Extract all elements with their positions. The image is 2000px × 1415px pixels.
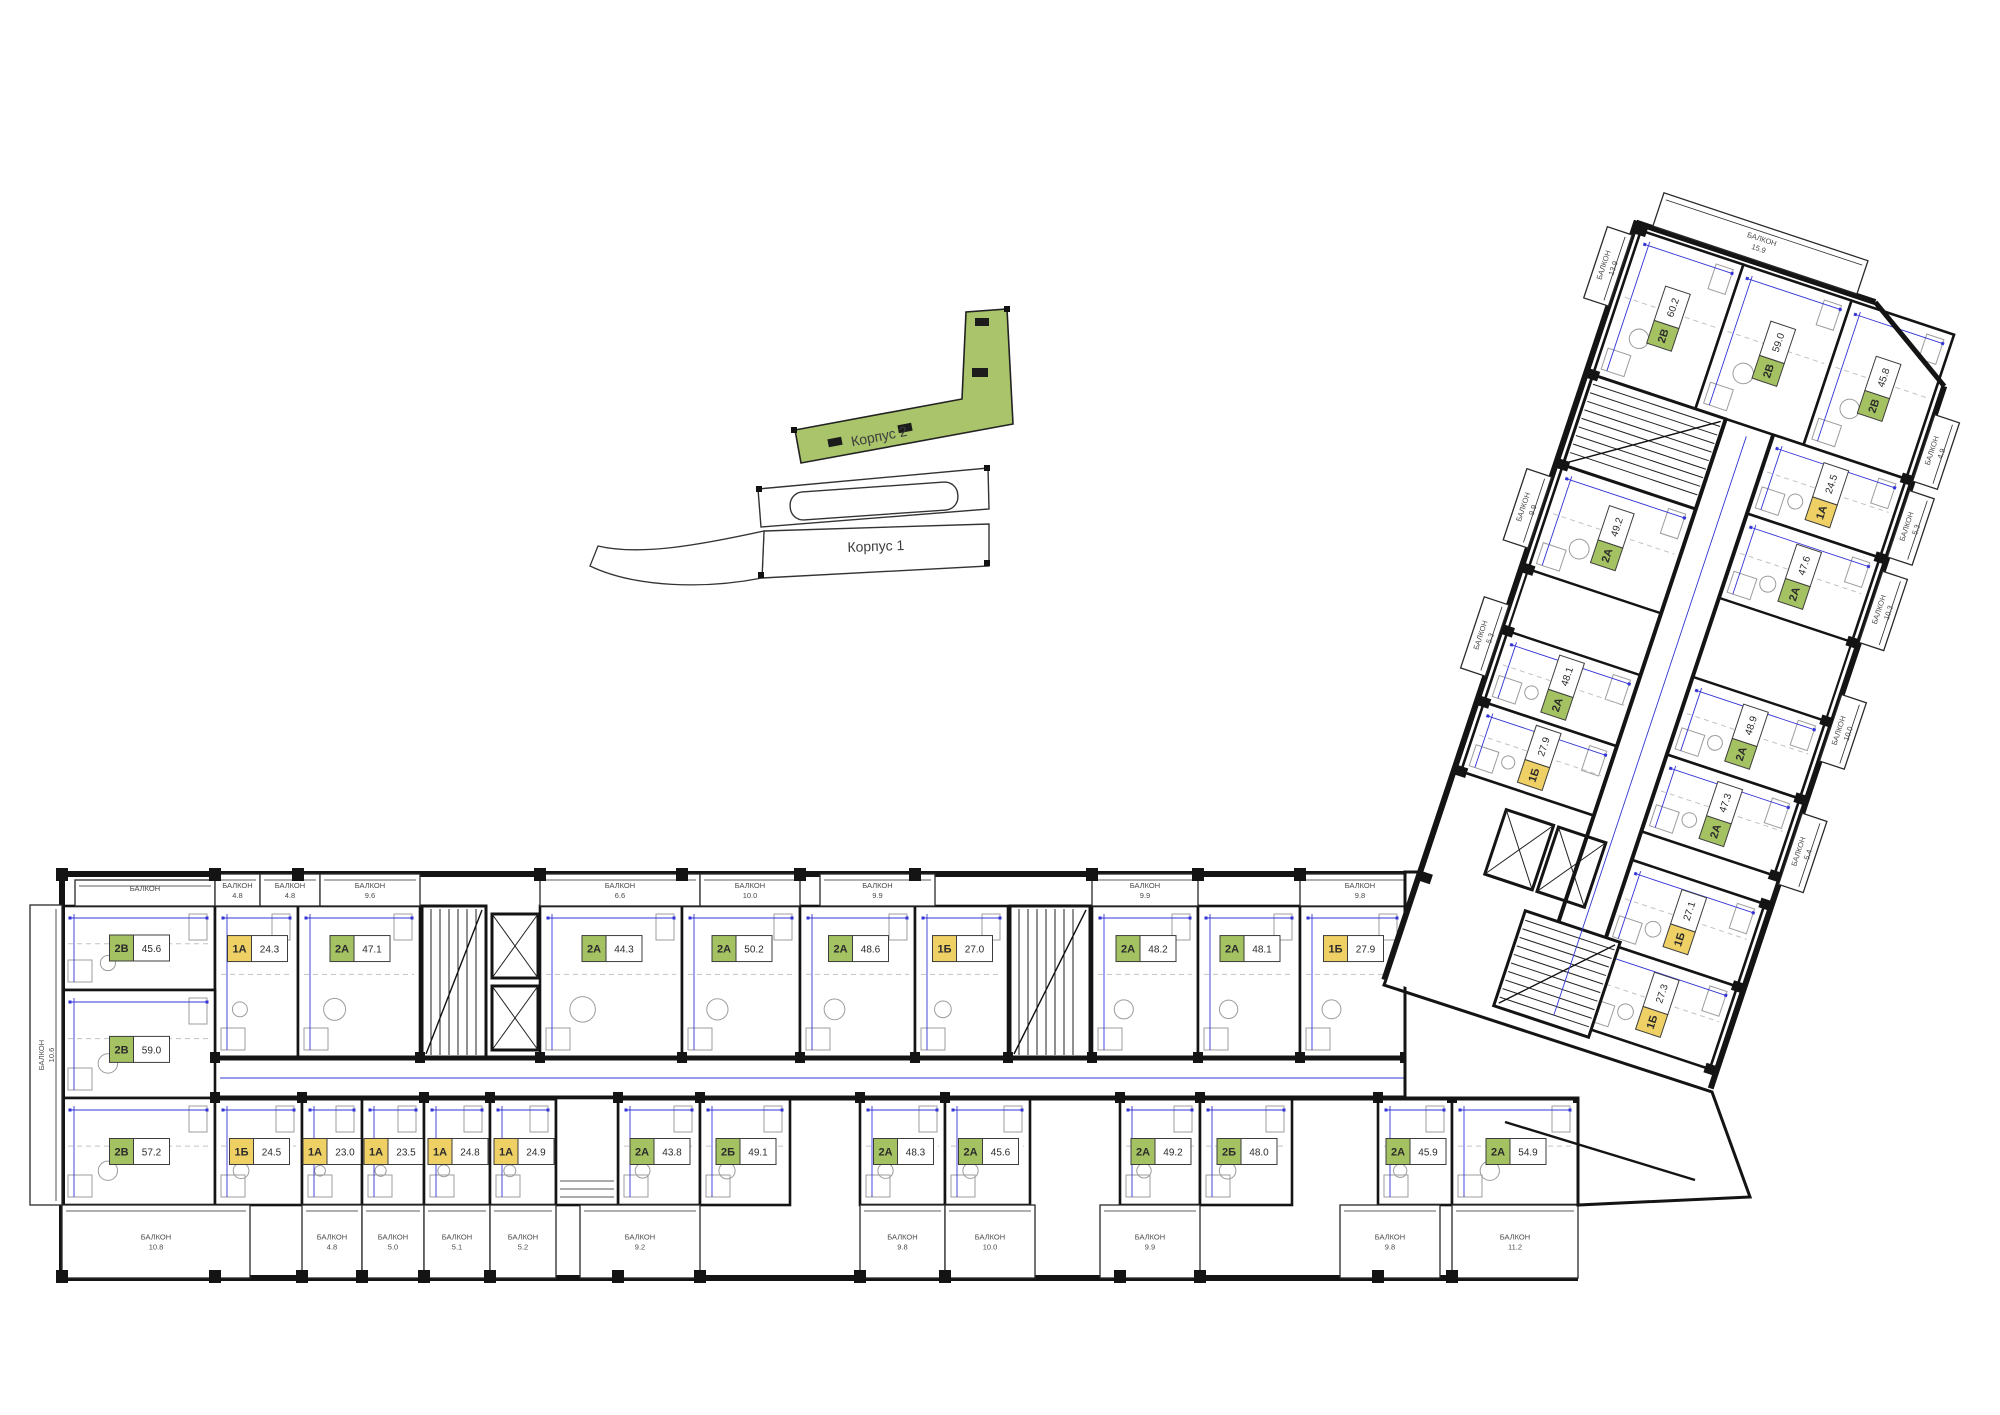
unit-type: 1Б [937, 944, 951, 956]
svg-text:10.0: 10.0 [983, 1243, 998, 1252]
unit-label[interactable]: 2A45.9 [1386, 1139, 1446, 1165]
unit-label[interactable]: 2B59.0 [110, 1036, 170, 1062]
unit-cell[interactable]: 2Б48.0 [1200, 1098, 1292, 1205]
unit-type: 2A [833, 944, 847, 956]
stair-core [1010, 906, 1090, 1058]
unit-label[interactable]: 2A48.6 [829, 936, 889, 962]
svg-text:10.8: 10.8 [149, 1243, 164, 1252]
svg-text:10.0: 10.0 [743, 891, 758, 900]
korpus-1-label: Корпус 1 [847, 537, 905, 555]
svg-text:БАЛКОН: БАЛКОН [1130, 881, 1160, 890]
unit-area: 23.0 [335, 1148, 355, 1159]
unit-cell[interactable]: 1A23.0 [302, 1098, 363, 1205]
unit-label[interactable]: 1A23.0 [303, 1139, 363, 1165]
balcony: БАЛКОН9.8 [1300, 874, 1420, 906]
unit-cell[interactable]: 2B45.6 [62, 906, 215, 990]
unit-type: 2B [114, 943, 128, 955]
unit-cell[interactable]: 2A44.3 [540, 906, 682, 1058]
unit-cell[interactable]: 2Б49.1 [700, 1098, 790, 1205]
unit-cell[interactable]: 1Б27.0 [915, 906, 1008, 1058]
unit-label[interactable]: 2Б49.1 [716, 1139, 776, 1165]
unit-area: 49.1 [748, 1148, 768, 1159]
unit-type: 1Б [1328, 944, 1342, 956]
svg-text:5.1: 5.1 [452, 1243, 462, 1252]
unit-label[interactable]: 2Б48.0 [1217, 1139, 1277, 1165]
unit-cell[interactable]: 2A43.8 [618, 1098, 700, 1205]
svg-text:10.6: 10.6 [47, 1048, 56, 1063]
unit-type: 2A [1491, 1147, 1505, 1159]
korpus-1-shape [758, 468, 989, 578]
balcony: БАЛКОН10.6 [30, 905, 62, 1205]
unit-area: 59.0 [142, 1045, 162, 1056]
unit-type: 2A [878, 1147, 892, 1159]
svg-text:9.6: 9.6 [365, 891, 375, 900]
unit-area: 48.0 [1249, 1148, 1269, 1159]
unit-type: 1A [369, 1147, 383, 1159]
unit-area: 24.5 [262, 1148, 282, 1159]
site-map: Корпус 2 Корпус 1 [590, 306, 1013, 585]
svg-text:БАЛКОН: БАЛКОН [862, 881, 892, 890]
balcony: БАЛКОН4.8 [260, 874, 320, 906]
svg-text:БАЛКОН: БАЛКОН [1375, 1233, 1405, 1242]
svg-text:БАЛКОН: БАЛКОН [735, 881, 765, 890]
svg-text:9.2: 9.2 [635, 1243, 645, 1252]
svg-text:9.8: 9.8 [1355, 891, 1365, 900]
unit-label[interactable]: 1Б27.9 [1324, 936, 1384, 962]
balcony: БАЛКОН9.8 [860, 1205, 945, 1278]
unit-label[interactable]: 1A24.3 [228, 936, 288, 962]
balcony: БАЛКОН10.0 [700, 874, 800, 906]
unit-area: 44.3 [614, 945, 634, 956]
unit-label[interactable]: 2B45.6 [110, 935, 170, 961]
unit-cell[interactable]: 1A24.9 [490, 1098, 556, 1205]
unit-type: 2A [1136, 1147, 1150, 1159]
unit-area: 24.9 [526, 1148, 546, 1159]
svg-text:БАЛКОН: БАЛКОН [317, 1233, 347, 1242]
balcony: БАЛКОН [75, 880, 215, 906]
stair-core [422, 906, 486, 1058]
unit-area: 45.6 [142, 944, 162, 955]
korpus-1-tail [590, 531, 764, 585]
svg-text:6.6: 6.6 [615, 891, 625, 900]
balcony: БАЛКОН5.2 [490, 1205, 556, 1278]
svg-text:4.8: 4.8 [285, 891, 295, 900]
svg-text:БАЛКОН: БАЛКОН [222, 881, 252, 890]
unit-cell[interactable]: 2A50.2 [682, 906, 800, 1058]
wing-right: 2B60.22B59.02B45.82A49.22A48.11Б27.91A24… [1360, 179, 1999, 1096]
unit-type: 2A [587, 944, 601, 956]
unit-area: 24.3 [260, 945, 280, 956]
unit-label[interactable]: 1A23.5 [364, 1139, 424, 1165]
unit-label[interactable]: 2A54.9 [1486, 1139, 1546, 1165]
unit-type: 2Б [721, 1147, 735, 1159]
elevator-shaft [492, 914, 538, 978]
balcony: БАЛКОН9.9 [1092, 874, 1198, 906]
svg-text:9.8: 9.8 [897, 1243, 907, 1252]
svg-text:БАЛКОН: БАЛКОН [442, 1233, 472, 1242]
unit-cell[interactable]: 1Б24.5 [215, 1098, 302, 1205]
svg-text:9.8: 9.8 [1385, 1243, 1395, 1252]
balcony-label: БАЛКОН [130, 884, 160, 893]
unit-area: 48.6 [861, 945, 881, 956]
svg-text:БАЛКОН: БАЛКОН [887, 1233, 917, 1242]
balcony: БАЛКОН5.0 [362, 1205, 424, 1278]
unit-type: 1Б [234, 1147, 248, 1159]
svg-text:5.0: 5.0 [388, 1243, 398, 1252]
unit-cell[interactable]: 1A23.5 [362, 1098, 424, 1205]
elevator-shaft [492, 986, 538, 1050]
unit-label[interactable]: 2A47.1 [330, 936, 390, 962]
unit-type: 2A [963, 1147, 977, 1159]
unit-type: 2Б [1222, 1147, 1236, 1159]
unit-cell[interactable]: 2A45.6 [945, 1098, 1030, 1205]
unit-type: 2A [635, 1147, 649, 1159]
balcony: БАЛКОН10.0 [945, 1205, 1035, 1278]
unit-label[interactable]: 2A49.2 [1131, 1139, 1191, 1165]
unit-area: 48.2 [1148, 945, 1168, 956]
unit-label[interactable]: 2A48.1 [1220, 936, 1280, 962]
unit-area: 57.2 [142, 1148, 162, 1159]
svg-text:11.2: 11.2 [1508, 1243, 1522, 1252]
unit-label[interactable]: 1Б24.5 [230, 1139, 290, 1165]
svg-text:БАЛКОН: БАЛКОН [378, 1233, 408, 1242]
svg-text:4.8: 4.8 [232, 891, 242, 900]
unit-cell[interactable]: 2B59.0 [62, 990, 215, 1098]
balcony: БАЛКОН5.1 [424, 1205, 490, 1278]
svg-text:9.9: 9.9 [872, 891, 882, 900]
unit-type: 2A [717, 944, 731, 956]
unit-area: 49.2 [1163, 1148, 1183, 1159]
unit-cell[interactable]: 2A48.1 [1198, 906, 1300, 1058]
svg-text:БАЛКОН: БАЛКОН [1135, 1233, 1165, 1242]
unit-label[interactable]: 2A48.3 [874, 1139, 934, 1165]
unit-cell[interactable]: 2A45.9 [1378, 1098, 1452, 1205]
balcony: БАЛКОН4.8 [302, 1205, 362, 1278]
unit-cell[interactable]: 2A48.2 [1092, 906, 1198, 1058]
unit-cell[interactable]: 2A48.3 [860, 1098, 945, 1205]
unit-label[interactable]: 2A48.2 [1116, 936, 1176, 962]
unit-label[interactable]: 2A43.8 [630, 1139, 690, 1165]
unit-type: 2B [114, 1044, 128, 1056]
unit-area: 24.8 [460, 1148, 480, 1159]
unit-type: 1A [499, 1147, 513, 1159]
unit-cell[interactable]: 2A49.2 [1120, 1098, 1200, 1205]
unit-area: 27.0 [965, 945, 985, 956]
unit-type: 1A [433, 1147, 447, 1159]
unit-area: 45.9 [1418, 1148, 1438, 1159]
unit-cell[interactable]: 1A24.8 [424, 1098, 490, 1205]
unit-label[interactable]: 1A24.9 [494, 1139, 554, 1165]
unit-label[interactable]: 1Б27.0 [933, 936, 993, 962]
svg-text:4.8: 4.8 [327, 1243, 337, 1252]
unit-type: 2A [1391, 1147, 1405, 1159]
unit-label[interactable]: 2A45.6 [959, 1139, 1019, 1165]
balcony: БАЛКОН9.2 [580, 1205, 700, 1278]
unit-label[interactable]: 2A44.3 [582, 936, 642, 962]
svg-text:5.2: 5.2 [518, 1243, 528, 1252]
svg-text:БАЛКОН: БАЛКОН [625, 1233, 655, 1242]
svg-text:БАЛКОН: БАЛКОН [355, 881, 385, 890]
balcony: БАЛКОН9.9 [1100, 1205, 1200, 1278]
unit-area: 47.1 [362, 945, 382, 956]
unit-cell[interactable]: 2A47.1 [298, 906, 420, 1058]
unit-area: 54.9 [1518, 1148, 1538, 1159]
unit-area: 48.3 [906, 1148, 926, 1159]
balcony: БАЛКОН9.6 [320, 874, 420, 906]
svg-text:9.9: 9.9 [1140, 891, 1150, 900]
balcony: БАЛКОН9.8 [1340, 1205, 1440, 1278]
unit-area: 43.8 [662, 1148, 682, 1159]
entrance-lobby [556, 1098, 618, 1205]
balcony: БАЛКОН10.8 [62, 1205, 250, 1278]
unit-type: 1A [232, 944, 246, 956]
unit-area: 48.1 [1252, 945, 1272, 956]
wing-horizontal: 2B45.61A24.32A47.12A44.32A50.22A48.61Б27… [30, 868, 1583, 1283]
unit-cell[interactable]: 2A54.9 [1452, 1098, 1578, 1205]
unit-cell[interactable]: 2B57.2 [62, 1098, 215, 1205]
unit-label[interactable]: 1A24.8 [428, 1139, 488, 1165]
unit-area: 27.9 [1356, 945, 1376, 956]
unit-type: 2A [335, 944, 349, 956]
floor-plan-page: Корпус 2 Корпус 1 2B45.61A24.32A47.12A44… [0, 0, 2000, 1415]
balcony: БАЛКОН4.8 [215, 874, 260, 906]
floor-plan-drawing: Корпус 2 Корпус 1 2B45.61A24.32A47.12A44… [0, 0, 2000, 1415]
svg-text:БАЛКОН: БАЛКОН [275, 881, 305, 890]
unit-label[interactable]: 2B57.2 [110, 1139, 170, 1165]
unit-cell[interactable]: 1A24.3 [215, 906, 298, 1058]
svg-text:БАЛКОН: БАЛКОН [508, 1233, 538, 1242]
unit-type: 2A [1225, 944, 1239, 956]
svg-text:БАЛКОН: БАЛКОН [1345, 881, 1375, 890]
unit-type: 2A [1121, 944, 1135, 956]
unit-cell[interactable]: 2A48.6 [800, 906, 915, 1058]
svg-text:БАЛКОН: БАЛКОН [37, 1040, 46, 1070]
svg-text:БАЛКОН: БАЛКОН [975, 1233, 1005, 1242]
unit-label[interactable]: 2A50.2 [712, 936, 772, 962]
svg-text:БАЛКОН: БАЛКОН [605, 881, 635, 890]
svg-text:БАЛКОН: БАЛКОН [141, 1233, 171, 1242]
svg-text:БАЛКОН: БАЛКОН [130, 884, 160, 893]
unit-area: 23.5 [396, 1148, 416, 1159]
svg-text:9.9: 9.9 [1145, 1243, 1155, 1252]
svg-text:БАЛКОН: БАЛКОН [1500, 1233, 1530, 1242]
balcony: БАЛКОН11.2 [1452, 1205, 1578, 1278]
unit-type: 1A [308, 1147, 322, 1159]
unit-type: 2B [114, 1147, 128, 1159]
unit-area: 45.6 [991, 1148, 1011, 1159]
unit-area: 50.2 [744, 945, 764, 956]
